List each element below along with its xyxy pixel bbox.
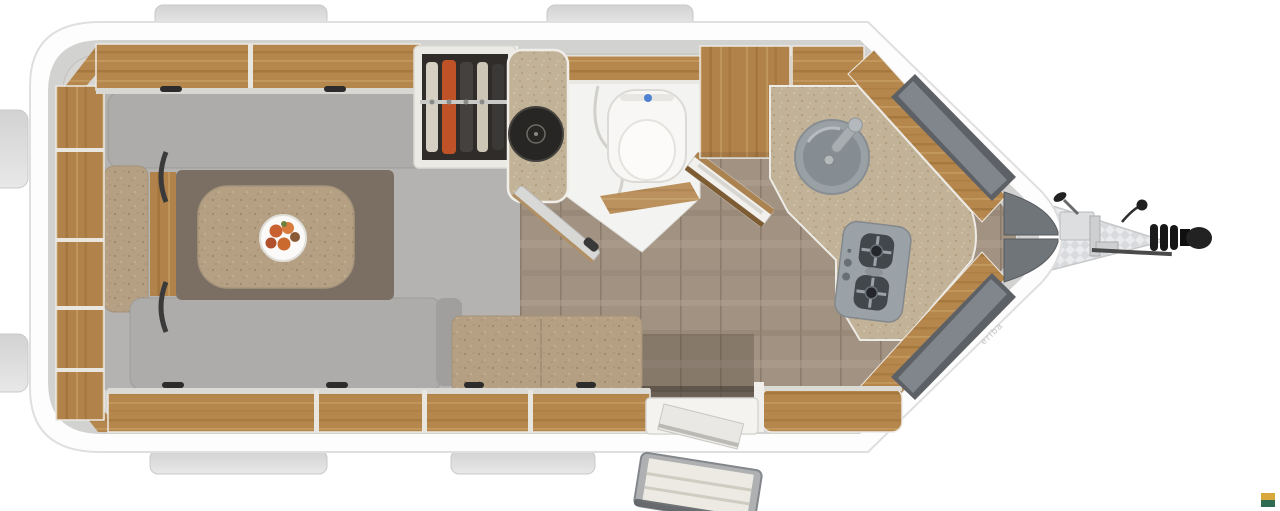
toilet-flush-button — [644, 94, 652, 102]
two-burner-hob — [833, 220, 912, 324]
toilet — [608, 90, 686, 182]
shelf-divider — [56, 306, 104, 310]
locker-divider — [314, 390, 319, 432]
breakaway-cable — [1122, 206, 1140, 222]
locker-latch — [576, 382, 596, 388]
locker-latch — [464, 382, 484, 388]
hanger-hook — [480, 100, 485, 105]
locker-band-bottom — [108, 390, 650, 432]
burner-1-cap — [870, 244, 883, 257]
hitch-bellows — [1160, 224, 1168, 251]
washroom-top-shelf — [556, 56, 702, 82]
seat-chest-by-door — [452, 316, 642, 392]
toilet-lid — [619, 120, 675, 180]
locker-latch — [162, 382, 184, 388]
cable-ball — [1137, 200, 1148, 211]
washbasin-unit — [508, 50, 568, 202]
fruit — [266, 238, 277, 249]
entry-door — [634, 398, 763, 511]
fruit-plate — [260, 215, 306, 261]
locker-rail-bottom — [108, 388, 650, 394]
roof-tab-bottom-right — [451, 450, 595, 474]
hanging-garment-dark2 — [492, 64, 504, 150]
locker-band-top — [96, 44, 420, 90]
jockey-wheel-plate — [1060, 212, 1094, 240]
washroom-shelf-rail — [556, 80, 702, 84]
sink-drain — [824, 155, 834, 165]
hitch-bellows — [1150, 224, 1158, 251]
kitchen-base-rail — [762, 386, 902, 391]
backrest-bolster-left — [104, 166, 148, 312]
wardrobe — [414, 46, 518, 176]
side-tab-rear-lower — [0, 334, 28, 392]
watermark-logo — [1261, 493, 1275, 507]
fruit-leaf — [281, 221, 287, 227]
bench-cushion-bottom — [130, 298, 442, 390]
locker-divider — [528, 390, 533, 432]
logo-green-half — [1261, 500, 1275, 507]
fruit — [278, 238, 291, 251]
hanger-hook — [464, 100, 469, 105]
hanger-hook — [447, 100, 452, 105]
coupling-head — [1186, 227, 1212, 249]
caravan-floorplan-image: eriba — [0, 0, 1280, 511]
locker-latch — [324, 86, 346, 92]
locker-latch — [326, 382, 348, 388]
hanging-garment-orange — [442, 60, 456, 154]
exterior-entry-step — [634, 452, 763, 511]
kitchen-base-cabinet — [762, 388, 902, 432]
shelf-divider — [56, 238, 104, 242]
burner-2-cap — [865, 286, 878, 299]
locker-latch — [160, 86, 182, 92]
shelf-divider — [56, 368, 104, 372]
roof-tab-bottom-left — [150, 450, 327, 474]
locker-divider — [248, 44, 253, 90]
logo-gold-half — [1261, 493, 1275, 500]
hanging-garment-dark — [460, 62, 473, 152]
shelf-divider — [56, 148, 104, 152]
locker-rail-top — [96, 88, 420, 94]
seat-chest-seam — [540, 318, 542, 390]
fruit — [270, 225, 283, 238]
hanging-garment-light — [426, 62, 438, 152]
hitch-bellows — [1170, 225, 1178, 250]
floorplan-canvas: eriba — [0, 0, 1280, 511]
side-tab-rear-upper — [0, 110, 28, 188]
locker-divider — [422, 390, 427, 432]
hanging-garment-tan — [477, 62, 488, 152]
washbasin-drain — [534, 132, 538, 136]
hanger-hook — [430, 100, 435, 105]
fruit — [290, 232, 300, 242]
